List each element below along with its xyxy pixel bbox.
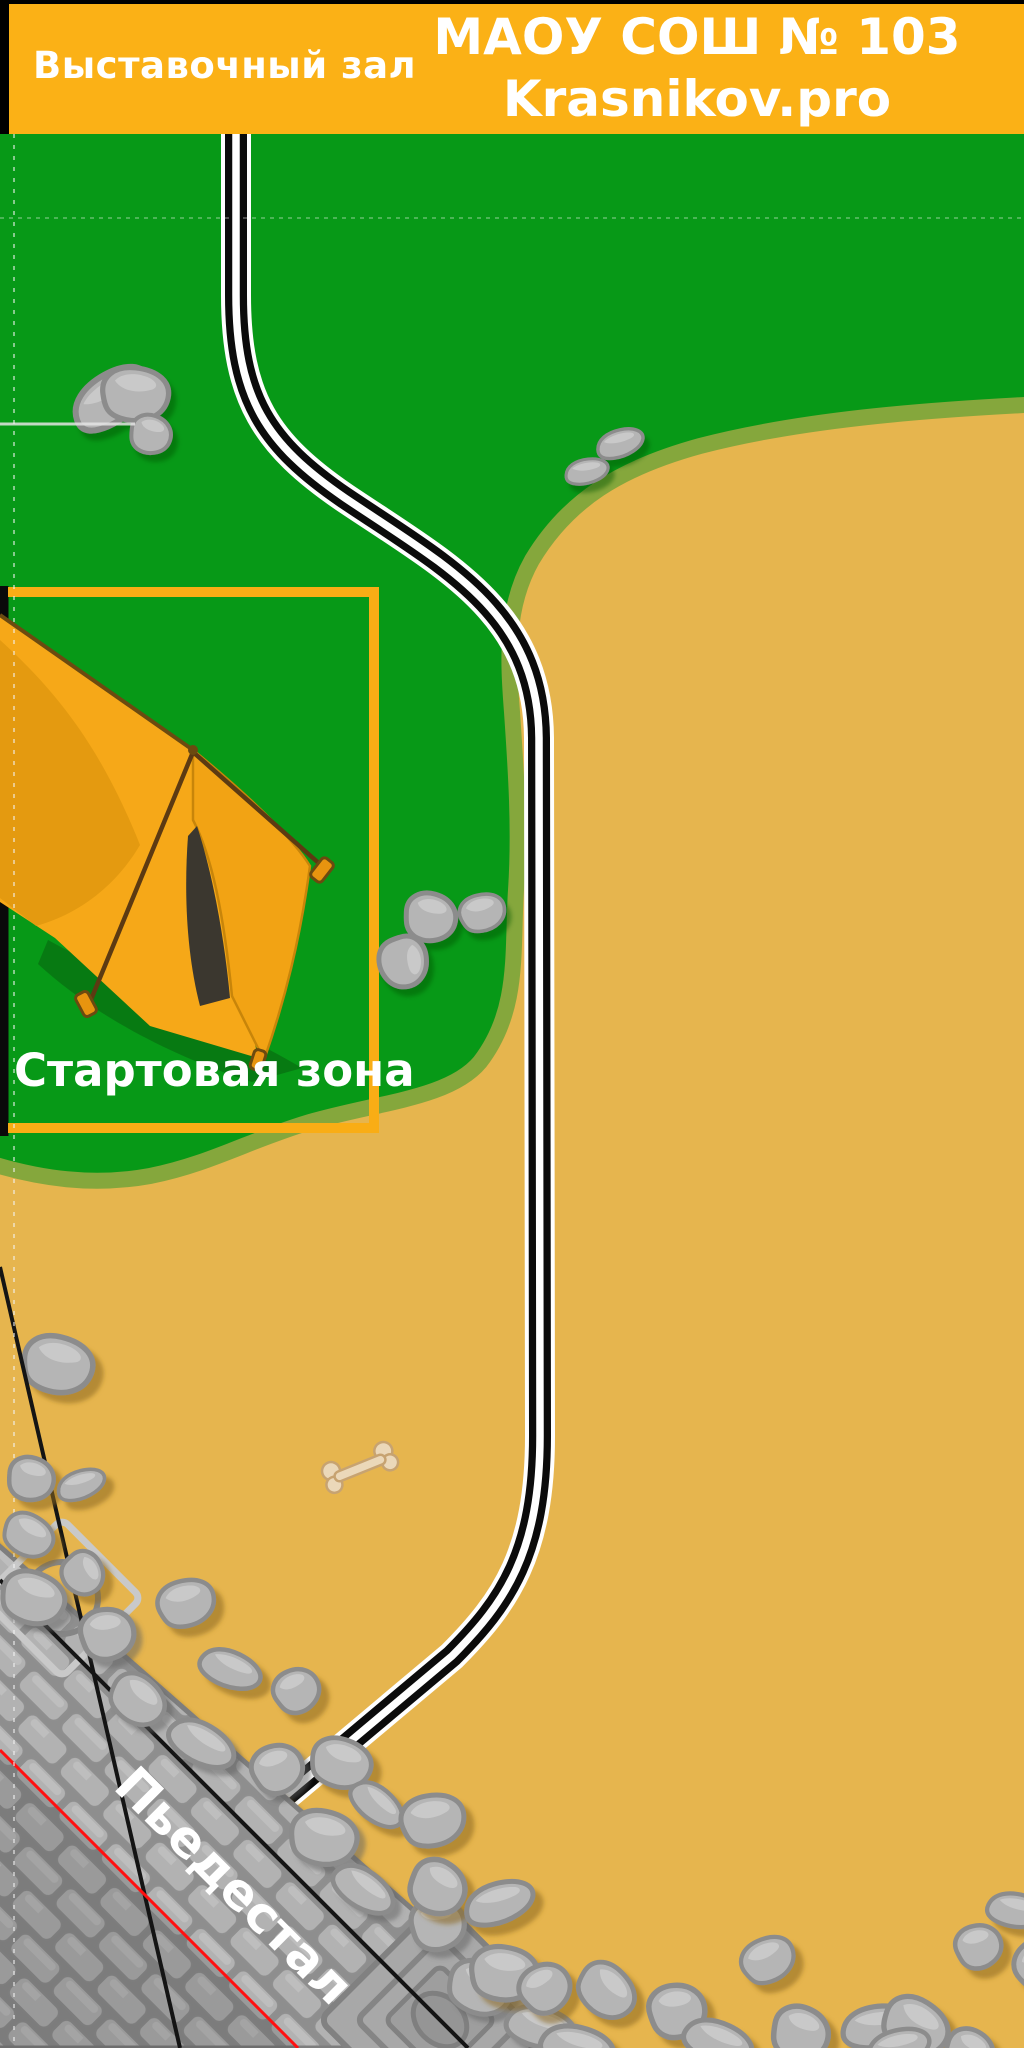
page-root: Пьедестал — [0, 0, 1024, 2048]
exhibition-hall-title: Выставочный зал — [33, 44, 416, 87]
school-site: Krasnikov.pro — [369, 68, 1024, 130]
start-zone-label: Стартовая зона — [14, 1044, 415, 1097]
map-canvas: Пьедестал — [0, 0, 1024, 2048]
school-name: МАОУ СОШ № 103 — [369, 6, 1024, 68]
school-title-block: МАОУ СОШ № 103 Krasnikov.pro — [369, 6, 1024, 130]
header-bar: Выставочный зал МАОУ СОШ № 103 Krasnikov… — [0, 0, 1024, 134]
